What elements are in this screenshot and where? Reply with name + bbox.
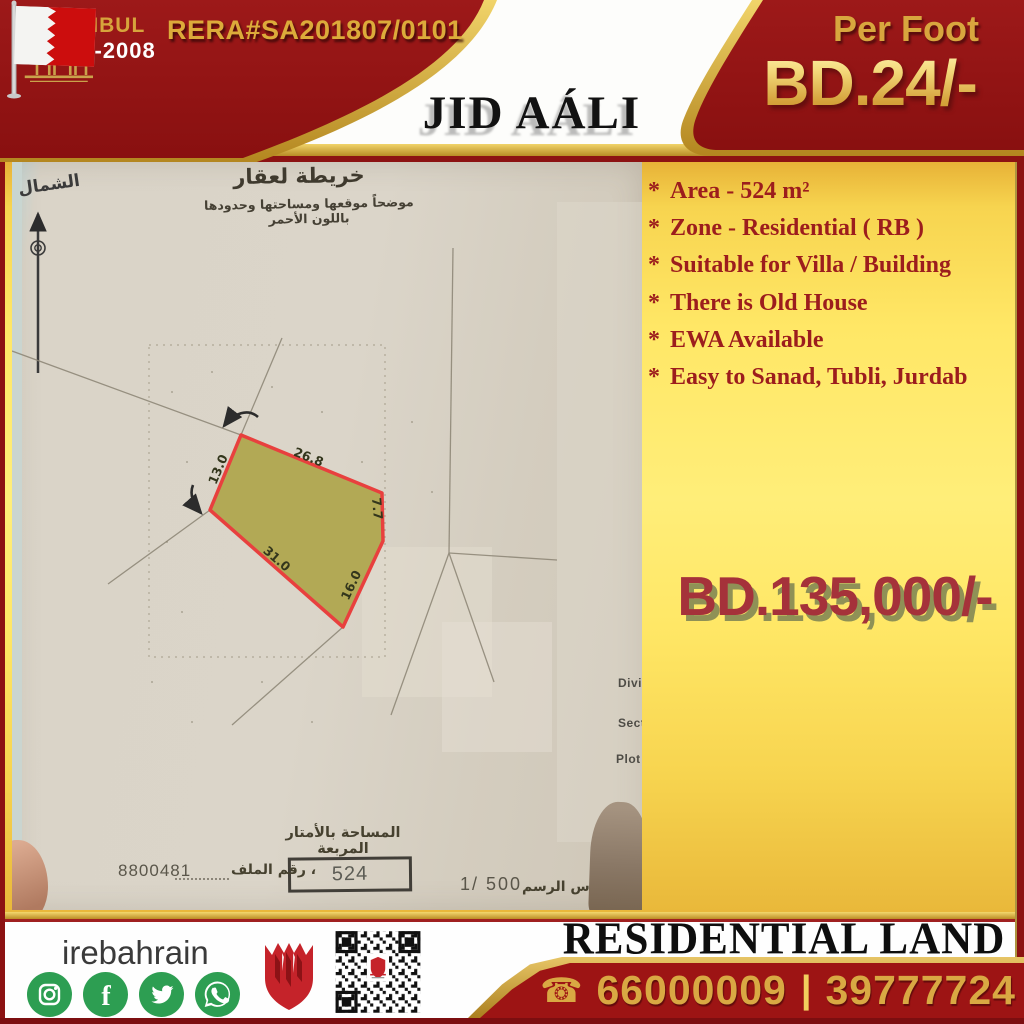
header: ISTANBUL SINCE-2008 RERA#SA201807/0101 J… [0,0,1024,163]
map-subtitle-arabic: موضحاً موقعها ومساحتها وحدودها باللون ال… [204,194,414,228]
survey-map-photo: 13.0 26.8 7.7 16.0 31.0 خريطة لعقار موضح… [12,162,642,910]
social-icons: f [27,972,240,1017]
total-price: BD.135,000/- [650,564,1020,628]
partial-label-section: Sect [618,716,642,730]
partial-label-division: Divis [618,676,642,690]
map-title-arabic: خريطة لعقار [209,162,389,189]
feature-item-area: *Area - 524 m² [648,179,1020,205]
facebook-icon[interactable]: f [83,972,128,1017]
scale-value: 1/ 500 [460,874,522,895]
qr-code[interactable] [330,926,430,1022]
per-foot-price: BD.24/- [720,46,1020,120]
file-label-arabic: رقم الملف ، [231,862,316,878]
svg-text:f: f [101,981,111,1012]
feature-item-zone: *Zone - Residential ( RB ) [648,216,1020,242]
phone-separator: | [801,969,812,1012]
survey-map-drawing: 13.0 26.8 7.7 16.0 31.0 [12,162,642,910]
phone-number-1[interactable]: 66000009 [596,967,786,1014]
feature-list: *Area - 524 m² *Zone - Residential ( RB … [648,179,1020,402]
area-value: 524 [332,863,369,886]
area-label-arabic: المساحة بالأمتار المربعة [262,825,424,857]
partial-label-plot: Plot [616,752,641,766]
phone-band: ☎ 66000009 | 39777724 [462,963,1024,1018]
instagram-icon[interactable] [27,972,72,1017]
phone-number-2[interactable]: 39777724 [826,967,1016,1014]
right-edge-strip [1015,162,1024,1018]
feature-item-access: *Easy to Sanad, Tubli, Jurdab [648,365,1020,391]
location-title: JID AÁLI [362,86,702,140]
agency-shield-logo [261,940,317,1012]
annotation-arrow-top [224,412,258,426]
twitter-icon[interactable] [139,972,184,1017]
bottom-strip [0,1018,1024,1024]
plot-polygon [210,435,383,627]
feature-item-suitable: *Suitable for Villa / Building [648,253,1020,279]
left-edge-strip [0,162,5,1018]
north-arrow-icon [31,214,45,373]
per-foot-label: Per Foot [798,8,1014,50]
edge-label-right: 7.7 [369,497,386,520]
feature-item-ewa: *EWA Available [648,328,1020,354]
whatsapp-icon[interactable] [195,972,240,1017]
feature-item-old-house: *There is Old House [648,291,1020,317]
rera-number: RERA#SA201807/0101 [167,15,463,46]
social-handle: irebahrain [62,934,222,972]
bahrain-flag-icon [0,0,104,100]
annotation-arrow-left [192,485,201,513]
real-estate-poster: ISTANBUL SINCE-2008 RERA#SA201807/0101 J… [0,0,1024,1024]
dotted-leader [175,862,229,880]
phone-icon: ☎ [540,974,582,1008]
